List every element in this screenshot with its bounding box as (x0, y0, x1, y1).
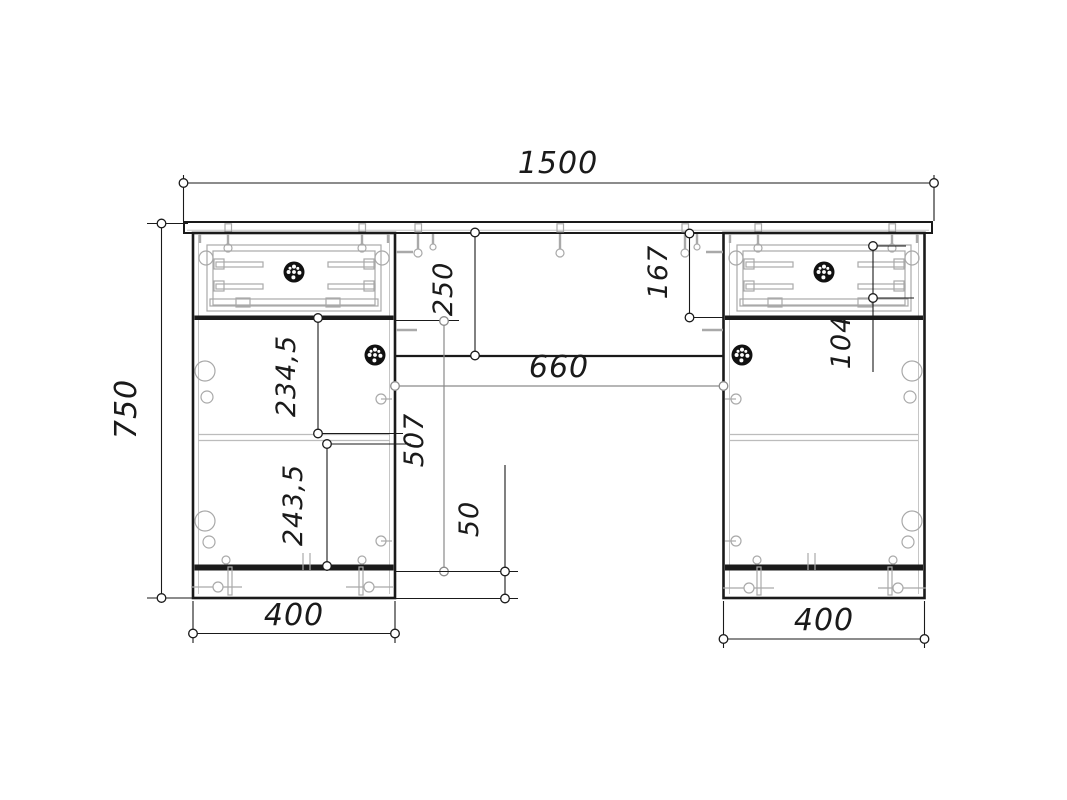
dim-label-50: 50 (454, 501, 485, 537)
knob-icon (284, 262, 305, 283)
dim-label-750: 750 (109, 379, 144, 439)
dimension-endpoint-icon (391, 629, 400, 638)
dimension-endpoint-icon (471, 351, 480, 360)
dimension-endpoint-icon (157, 594, 166, 603)
dimension-endpoint-icon (179, 179, 188, 188)
dim-label-234-5: 234,5 (271, 335, 302, 417)
dimension-endpoint-icon (719, 382, 728, 391)
dim-label-250: 250 (428, 262, 459, 317)
dimension-drawer-space: 167 (643, 229, 723, 322)
knob-icon (814, 262, 835, 283)
desk-top (184, 222, 932, 233)
dimension-endpoint-icon (189, 629, 198, 638)
dimension-overall-width: 1500 (179, 146, 938, 221)
dimension-right-pedestal-width: 400 (719, 601, 929, 648)
left-drawer-divider (195, 316, 394, 321)
dimension-endpoint-icon (869, 242, 878, 251)
dim-label-400-right: 400 (794, 603, 854, 638)
dimension-endpoint-icon (685, 313, 694, 322)
dim-label-1500: 1500 (518, 146, 598, 181)
dimension-endpoint-icon (440, 317, 449, 326)
dimension-endpoint-icon (314, 314, 323, 323)
dim-label-104: 104 (826, 315, 857, 370)
right-drawer-divider (725, 316, 923, 321)
dimension-endpoint-icon (685, 229, 694, 238)
dimension-endpoint-icon (501, 567, 510, 576)
dimension-left-pedestal-width: 400 (189, 598, 400, 643)
dimension-endpoint-icon (501, 594, 510, 603)
dimension-plinth-height: 50 (396, 465, 518, 603)
dimension-endpoint-icon (471, 228, 480, 237)
dimension-endpoint-icon (323, 440, 332, 449)
dim-label-507: 507 (399, 413, 430, 468)
dim-label-660: 660 (529, 350, 589, 385)
dimension-endpoint-icon (930, 179, 939, 188)
blueprint-canvas: 1500 750 400 400 660 250 (0, 0, 1067, 800)
technical-drawing: 1500 750 400 400 660 250 (0, 0, 1067, 800)
dimension-overall-height: 750 (109, 219, 192, 602)
left-bottom-panel (195, 565, 394, 571)
dimension-endpoint-icon (869, 294, 878, 303)
dim-label-400-left: 400 (264, 598, 324, 633)
knob-icon (365, 345, 386, 366)
dimension-endpoint-icon (391, 382, 400, 391)
dimension-endpoint-icon (719, 635, 728, 644)
dimension-endpoint-icon (157, 219, 166, 228)
dim-label-167: 167 (643, 245, 674, 300)
knob-icon (732, 345, 753, 366)
dimension-endpoint-icon (314, 429, 323, 438)
dim-label-243-5: 243,5 (278, 464, 309, 546)
dimension-endpoint-icon (323, 562, 332, 571)
dimension-endpoint-icon (920, 635, 929, 644)
right-bottom-panel (725, 565, 923, 571)
